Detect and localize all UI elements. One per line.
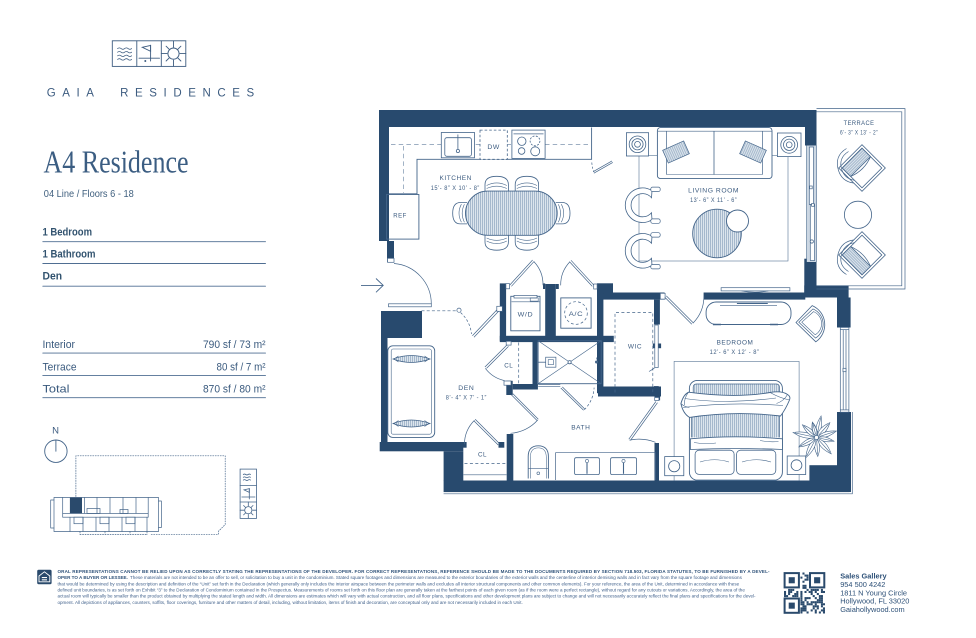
- svg-text:Interior: Interior: [43, 339, 76, 351]
- svg-text:REF: REF: [393, 213, 407, 220]
- svg-text:BEDROOM: BEDROOM: [717, 340, 754, 347]
- svg-text:A4 Residence: A4 Residence: [44, 144, 189, 180]
- svg-text:1 Bedroom: 1 Bedroom: [43, 226, 93, 238]
- svg-text:actual room will typically be: actual room will typically be smaller th…: [58, 594, 757, 599]
- svg-text:13’- 6” X 11’ - 6”: 13’- 6” X 11’ - 6”: [690, 197, 737, 204]
- svg-text:15’- 8” X 10’ - 8”: 15’- 8” X 10’ - 8”: [431, 185, 480, 192]
- svg-text:LIVING ROOM: LIVING ROOM: [688, 188, 739, 195]
- svg-text:6’- 3” X 13’ - 2”: 6’- 3” X 13’ - 2”: [840, 129, 878, 136]
- svg-text:that would be determined by us: that would be determined by using the de…: [58, 581, 740, 586]
- svg-text:80 sf / 7 m²: 80 sf / 7 m²: [217, 361, 266, 373]
- svg-text:OPER TO A BUYER OR LESSEE. The: OPER TO A BUYER OR LESSEE. These materia…: [58, 575, 743, 580]
- svg-text:12’- 6” X 12’ - 8”: 12’- 6” X 12’ - 8”: [710, 349, 760, 356]
- svg-text:CL: CL: [478, 452, 487, 459]
- svg-text:Gaiahollywood.com: Gaiahollywood.com: [840, 605, 905, 614]
- svg-text:1 Bathroom: 1 Bathroom: [43, 249, 96, 261]
- svg-text:BATH: BATH: [571, 424, 590, 431]
- svg-text:04 Line / Floors 6 - 18: 04 Line / Floors 6 - 18: [44, 189, 134, 200]
- svg-text:N: N: [52, 426, 59, 437]
- svg-text:CL: CL: [504, 363, 513, 370]
- svg-text:DW: DW: [487, 144, 500, 151]
- svg-text:870 sf / 80 m²: 870 sf / 80 m²: [203, 384, 266, 396]
- svg-text:opment. All depictions of appl: opment. All depictions of appliances, co…: [58, 600, 523, 605]
- svg-text:KITCHEN: KITCHEN: [440, 175, 472, 182]
- svg-text:Den: Den: [43, 270, 63, 282]
- svg-text:790 sf / 73 m²: 790 sf / 73 m²: [203, 339, 266, 351]
- svg-text:GAIA RESIDENCES: GAIA RESIDENCES: [47, 88, 255, 100]
- svg-text:Total: Total: [43, 384, 70, 396]
- svg-text:defined unit boundaries, is as: defined unit boundaries, is as set forth…: [58, 588, 746, 593]
- svg-text:Terrace: Terrace: [43, 361, 77, 373]
- svg-text:TERRACE: TERRACE: [844, 120, 875, 127]
- svg-text:ORAL REPRESENTATIONS CANNOT BE: ORAL REPRESENTATIONS CANNOT BE RELIED UP…: [58, 569, 770, 574]
- svg-text:W/D: W/D: [518, 312, 534, 319]
- svg-text:A/C: A/C: [569, 311, 584, 318]
- svg-text:WIC: WIC: [628, 343, 642, 350]
- svg-text:DEN: DEN: [458, 385, 474, 392]
- svg-text:8’- 4” X 7’ - 1”: 8’- 4” X 7’ - 1”: [446, 394, 487, 401]
